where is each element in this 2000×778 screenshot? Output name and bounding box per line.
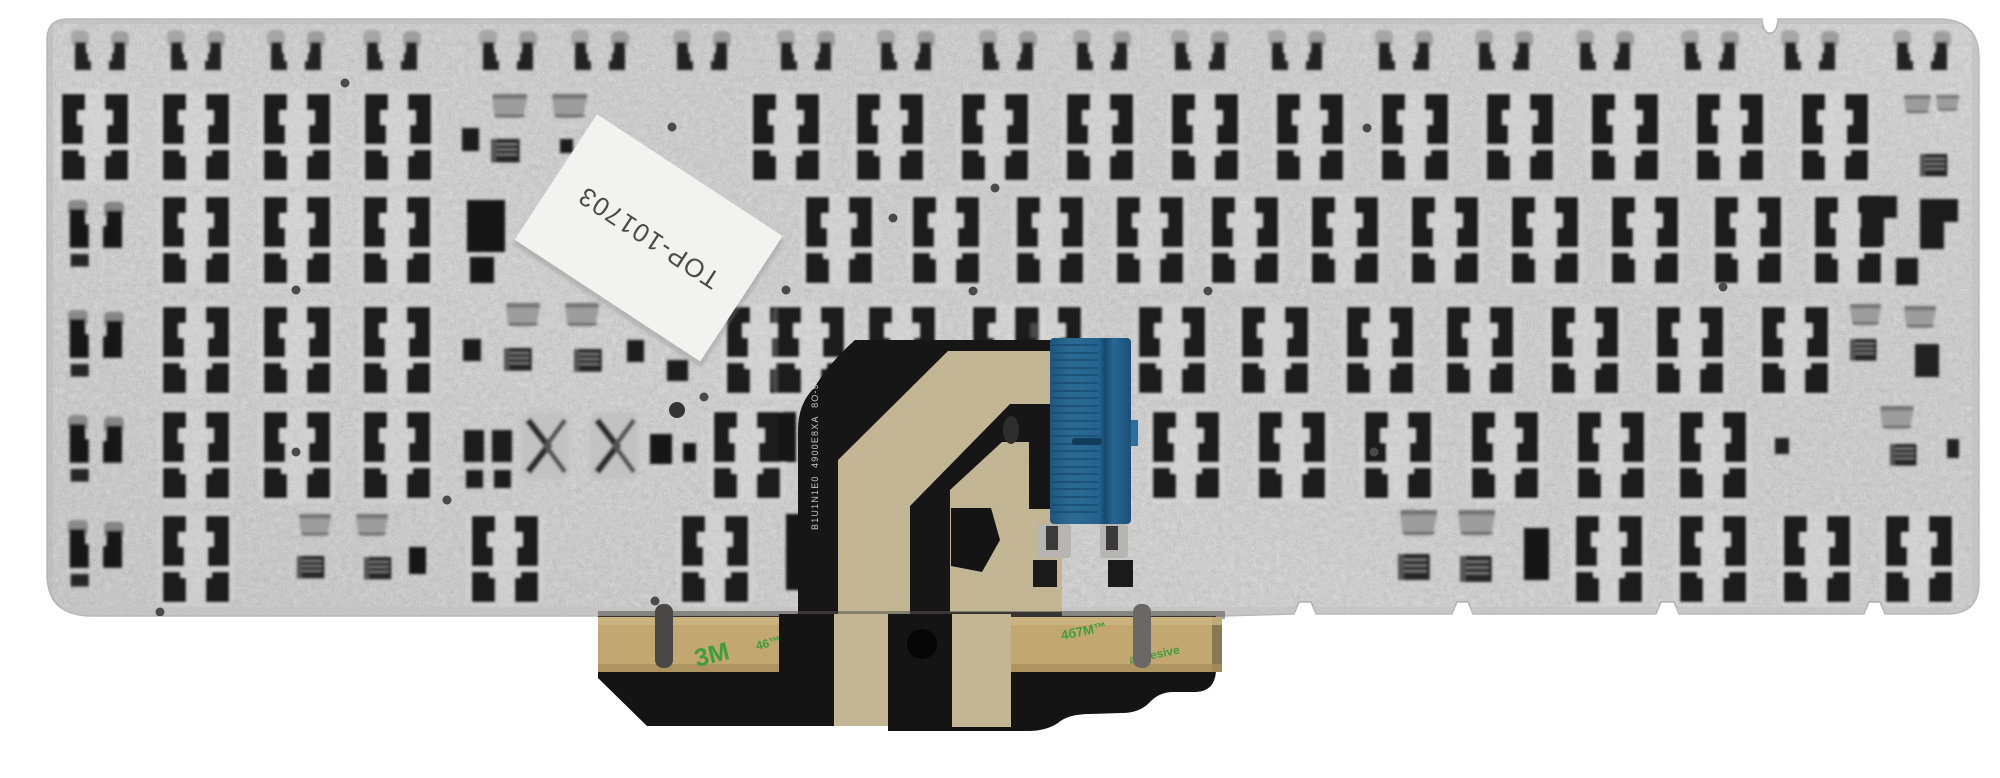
svg-text:B1U1N1E0 4900E8XA 8O-9T9Y1A: B1U1N1E0 4900E8XA 8O-9T9Y1A bbox=[810, 350, 820, 530]
